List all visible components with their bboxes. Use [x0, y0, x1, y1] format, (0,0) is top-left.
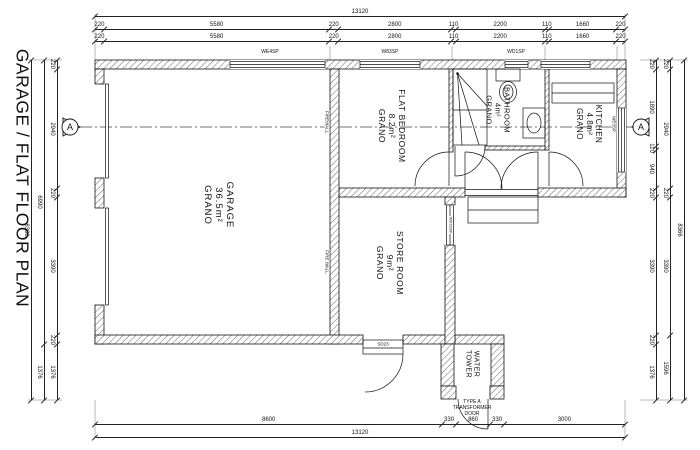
- dim-label: 3390: [49, 260, 55, 273]
- dim-line: [95, 437, 625, 438]
- label-sd23: SD23: [376, 341, 389, 346]
- window-label-we3sp: WE3SP: [611, 115, 616, 133]
- dim-label: 220: [49, 59, 55, 69]
- dim-label: 5580: [210, 34, 223, 40]
- dim-label: 220: [329, 22, 339, 28]
- dim-line: [57, 60, 58, 400]
- dim-label: 220: [94, 34, 104, 40]
- room-label-water-tower: WATERTOWER: [463, 350, 480, 378]
- dim-label: 330: [444, 417, 454, 423]
- dim-label: 220: [662, 59, 668, 69]
- window-label-wd1sp: WD1SP: [507, 50, 525, 56]
- dim-label: 220: [648, 188, 654, 198]
- dim-label: 220: [329, 34, 339, 40]
- dim-line: [656, 60, 657, 400]
- label-firewall-upper: FIREWALL: [324, 110, 329, 134]
- dim-label: 13120: [352, 430, 369, 436]
- room-label-store-room: STORE ROOM9m²GRANO: [375, 231, 405, 295]
- label-firewall-lower: FIRE WALL: [324, 249, 329, 275]
- dim-label: 1596: [662, 361, 668, 374]
- annotation-layer: 1312022055802202800110220011016602202205…: [0, 0, 700, 450]
- dim-label: 110: [648, 143, 654, 153]
- dim-label: 220: [49, 335, 55, 345]
- dim-label: 220: [49, 188, 55, 198]
- dim-label: 1376: [49, 365, 55, 378]
- dim-label: 8600: [262, 417, 275, 423]
- dim-label: 13120: [352, 9, 369, 15]
- dim-label: 110: [449, 34, 459, 40]
- dim-tick: [622, 434, 628, 440]
- window-label-wd22sp: WD22SP: [448, 216, 453, 234]
- dim-label: 220: [94, 22, 104, 28]
- dim-label: 1890: [648, 101, 654, 114]
- dim-label: 860: [468, 417, 478, 423]
- room-label-garage: GARAGE36.5m²GRANO: [201, 182, 235, 229]
- dim-label: 2940: [49, 122, 55, 135]
- dim-label: 1660: [576, 34, 589, 40]
- dim-line: [684, 60, 685, 400]
- dim-line: [670, 60, 671, 400]
- dim-label: 3000: [558, 417, 571, 423]
- dim-label: 2200: [493, 34, 506, 40]
- dim-label: 8366: [676, 223, 682, 236]
- dim-label: 3390: [648, 260, 654, 273]
- dim-label: 2800: [388, 34, 401, 40]
- dim-label: 220: [616, 22, 626, 28]
- dim-tick: [653, 397, 659, 403]
- dim-line: [31, 60, 32, 400]
- dim-label: 1376: [648, 365, 654, 378]
- dim-label: 330: [492, 417, 502, 423]
- window-label-w83sp: W83SP: [382, 50, 399, 56]
- dim-line: [44, 60, 45, 400]
- dim-tick: [622, 421, 628, 427]
- floor-plan-page: A A GARAGE / FLAT FLOOR PLAN 13120220558…: [0, 0, 700, 450]
- dim-label: 220: [662, 188, 668, 198]
- dim-label: 6990: [36, 195, 42, 208]
- dim-label: 2200: [493, 22, 506, 28]
- dim-tick: [681, 397, 687, 403]
- dim-label: 5580: [210, 22, 223, 28]
- dim-tick: [41, 397, 47, 403]
- dim-label: 8366: [23, 223, 29, 236]
- dim-label: 110: [542, 34, 552, 40]
- window-label-we4sp: WE4SP: [261, 50, 279, 56]
- dim-label: 110: [449, 22, 459, 28]
- dim-label: 2940: [662, 122, 668, 135]
- room-label-flat-bedroom: FLAT BEDROOM8.2m²GRANO: [377, 89, 407, 162]
- dim-label: 2800: [388, 22, 401, 28]
- dim-label: 1660: [576, 22, 589, 28]
- dim-tick: [28, 397, 34, 403]
- room-label-bathroom: BATHROOM4m²GRANO: [484, 87, 511, 133]
- dim-line: [95, 16, 625, 17]
- dim-label: 1376: [36, 365, 42, 378]
- dim-label: 220: [616, 34, 626, 40]
- dim-tick: [622, 13, 628, 19]
- room-label-kitchen: KITCHEN4.8m²GRANO: [575, 105, 603, 144]
- dim-tick: [54, 397, 60, 403]
- dim-label: 3390: [662, 260, 668, 273]
- dim-line: [95, 424, 625, 425]
- dim-tick: [667, 397, 673, 403]
- dim-label: 220: [648, 59, 654, 69]
- label-transformer-door: TYPE ATRANSFORMERDOOR: [453, 400, 492, 418]
- dim-label: 940: [648, 164, 654, 174]
- dim-label: 110: [542, 22, 552, 28]
- dim-label: 220: [648, 335, 654, 345]
